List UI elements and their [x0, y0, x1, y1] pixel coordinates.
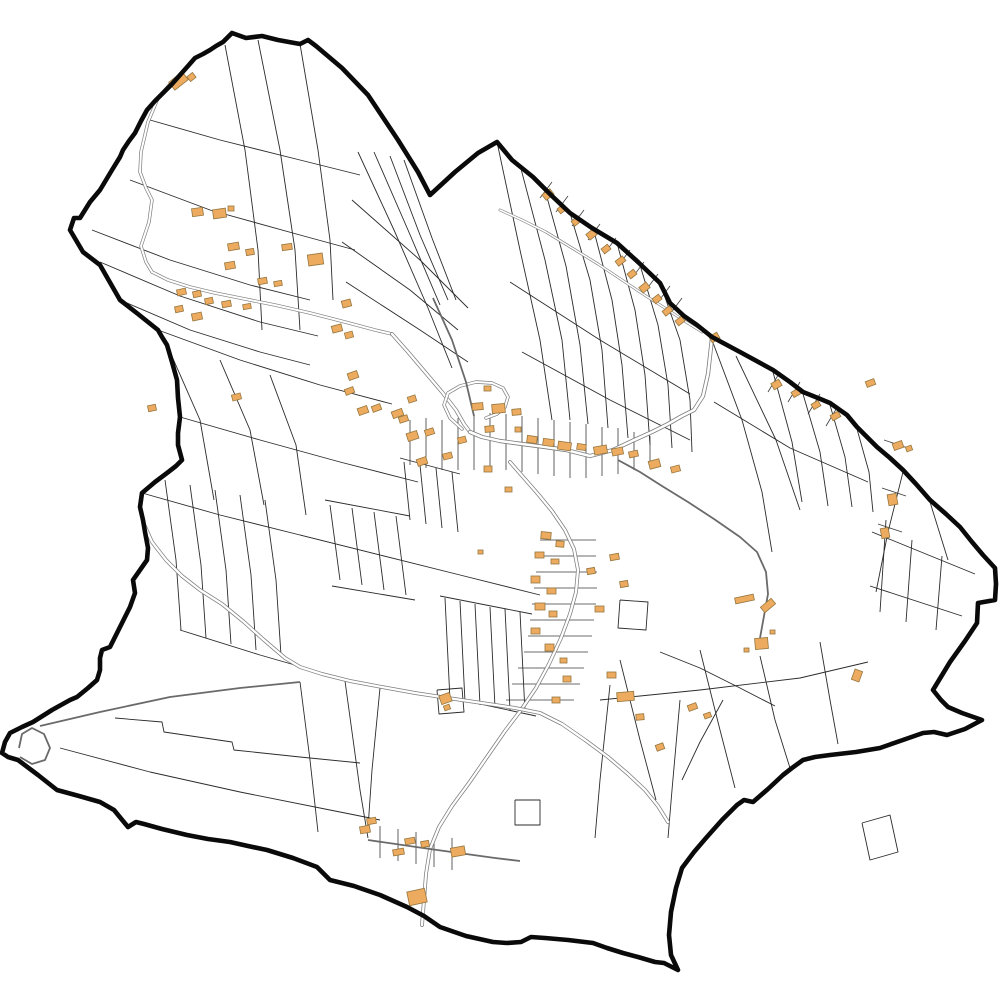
building [505, 487, 512, 492]
parcel-line [180, 417, 418, 482]
parcel-line [345, 681, 368, 838]
parcel-line [440, 596, 532, 614]
building [670, 465, 680, 473]
parcel-line [190, 485, 206, 638]
building [406, 430, 419, 441]
parcel-line [215, 490, 231, 644]
parcel-line [130, 180, 355, 250]
building [547, 588, 556, 594]
parcel-line [270, 375, 306, 515]
parcel-line [595, 685, 610, 838]
building [359, 825, 370, 834]
parcel-line [358, 152, 452, 368]
building [535, 603, 545, 610]
building [655, 743, 665, 751]
building [228, 206, 234, 211]
building [563, 676, 571, 682]
parcel-line [150, 120, 360, 175]
building [176, 288, 186, 296]
building [147, 404, 156, 412]
building [755, 637, 769, 649]
building [887, 493, 898, 505]
building [485, 426, 494, 433]
building [628, 450, 638, 458]
parcel-line [352, 200, 468, 308]
building [770, 630, 775, 634]
parcel-line [820, 642, 838, 744]
building [541, 532, 552, 540]
building [552, 697, 560, 703]
building [224, 261, 235, 270]
building [760, 598, 775, 612]
building [892, 441, 904, 451]
parcel-line [300, 535, 540, 595]
building [558, 441, 572, 451]
road-casing-ne-lane [500, 210, 702, 332]
track-hamlet-track-south [368, 840, 520, 861]
parcel-line [165, 480, 181, 630]
building [227, 242, 239, 251]
parcel-line [158, 330, 392, 404]
parcel-line [515, 800, 540, 825]
building [744, 648, 749, 652]
parcel-line [420, 465, 426, 524]
building [341, 299, 352, 308]
building [282, 243, 293, 250]
cadastral-map-svg [0, 0, 1000, 1000]
parcel-line [120, 300, 310, 365]
building [371, 404, 382, 413]
building [191, 312, 202, 321]
building [478, 550, 483, 554]
building [556, 541, 564, 548]
parcel-line [870, 586, 962, 616]
parcel-line [906, 540, 912, 622]
building [492, 403, 506, 413]
building [407, 395, 416, 403]
building [549, 611, 557, 617]
building [593, 445, 607, 455]
parcel-line [265, 500, 281, 655]
building [515, 427, 521, 432]
building [212, 208, 226, 219]
building [535, 552, 544, 558]
building [601, 244, 611, 254]
road-casing-south-road [143, 522, 668, 822]
parcel-line [682, 700, 723, 780]
building [830, 411, 841, 421]
parcel-line [872, 532, 975, 574]
building [484, 466, 492, 472]
building [577, 443, 587, 450]
building [421, 840, 430, 847]
parcel-line [520, 612, 525, 712]
building [880, 527, 890, 538]
parcel-line [620, 660, 656, 800]
parcel-line [436, 468, 442, 528]
building [687, 703, 698, 712]
track-sw-hook-lane [19, 728, 50, 764]
building [735, 594, 755, 604]
parcel-line [445, 598, 450, 700]
building [274, 280, 283, 286]
building [204, 297, 213, 305]
building [405, 837, 416, 845]
building [851, 669, 862, 682]
building [811, 400, 821, 409]
building [484, 386, 491, 391]
parcel-line [660, 652, 775, 706]
parcel-line [712, 340, 772, 552]
building [174, 305, 183, 313]
building [231, 393, 241, 401]
roads-layer [140, 82, 712, 925]
municipal-boundary-layer [2, 33, 996, 970]
building [439, 692, 452, 704]
municipal-boundary [2, 33, 996, 970]
parcel-line [374, 512, 384, 590]
parcel-line [332, 586, 415, 600]
building [222, 300, 232, 307]
building [620, 580, 629, 587]
building [587, 567, 596, 574]
building [347, 371, 359, 381]
parcel-line [618, 600, 648, 630]
building [551, 559, 559, 564]
parcel-line [452, 472, 458, 532]
parcel-line [600, 662, 868, 700]
parcel-line [876, 472, 903, 592]
parcel-line [936, 556, 942, 630]
building [771, 379, 782, 390]
building [865, 379, 876, 388]
building [610, 553, 620, 560]
building [545, 644, 554, 651]
parcel-line [352, 508, 362, 585]
parcel-line [368, 688, 380, 828]
building [703, 712, 711, 719]
building [243, 303, 252, 309]
parcel-line [862, 815, 898, 860]
building [357, 406, 369, 416]
building [443, 704, 450, 711]
building [191, 207, 203, 216]
building [512, 409, 521, 416]
parcel-line [396, 516, 406, 595]
building [246, 248, 255, 255]
building [442, 452, 452, 460]
building [331, 324, 342, 333]
building [258, 277, 268, 284]
building [595, 606, 604, 612]
building [607, 672, 616, 678]
parcel-line [400, 458, 460, 474]
building [393, 848, 405, 856]
parcel-line [803, 394, 828, 506]
building [457, 436, 466, 444]
building [627, 269, 637, 279]
building [450, 846, 465, 857]
building [531, 576, 540, 583]
cadastral-map [0, 0, 1000, 1000]
parcel-line [460, 601, 465, 702]
parcel-line [490, 607, 495, 707]
parcel-line [220, 360, 264, 505]
parcel-line [225, 45, 262, 330]
track-field-track-north [433, 298, 474, 416]
buildings-layer [147, 72, 912, 906]
building [636, 714, 644, 721]
parcel-line [325, 500, 410, 516]
building [192, 290, 201, 298]
building [543, 438, 555, 446]
building [531, 628, 540, 634]
track-se-track [618, 460, 768, 638]
building [344, 331, 353, 339]
parcel-line [115, 718, 360, 763]
track-sw-field-lane [40, 682, 300, 726]
building [472, 403, 484, 411]
road-fill-south-road [143, 522, 668, 822]
parcel-line [760, 656, 790, 768]
building [560, 658, 567, 663]
building [527, 435, 538, 443]
parcel-line [668, 700, 680, 838]
building [367, 817, 377, 824]
parcel-line [404, 462, 410, 520]
building [307, 253, 323, 266]
parcel-line [475, 604, 480, 705]
parcel-line [505, 609, 510, 710]
building [617, 691, 635, 701]
building [905, 445, 912, 452]
parcel-line [258, 40, 300, 330]
